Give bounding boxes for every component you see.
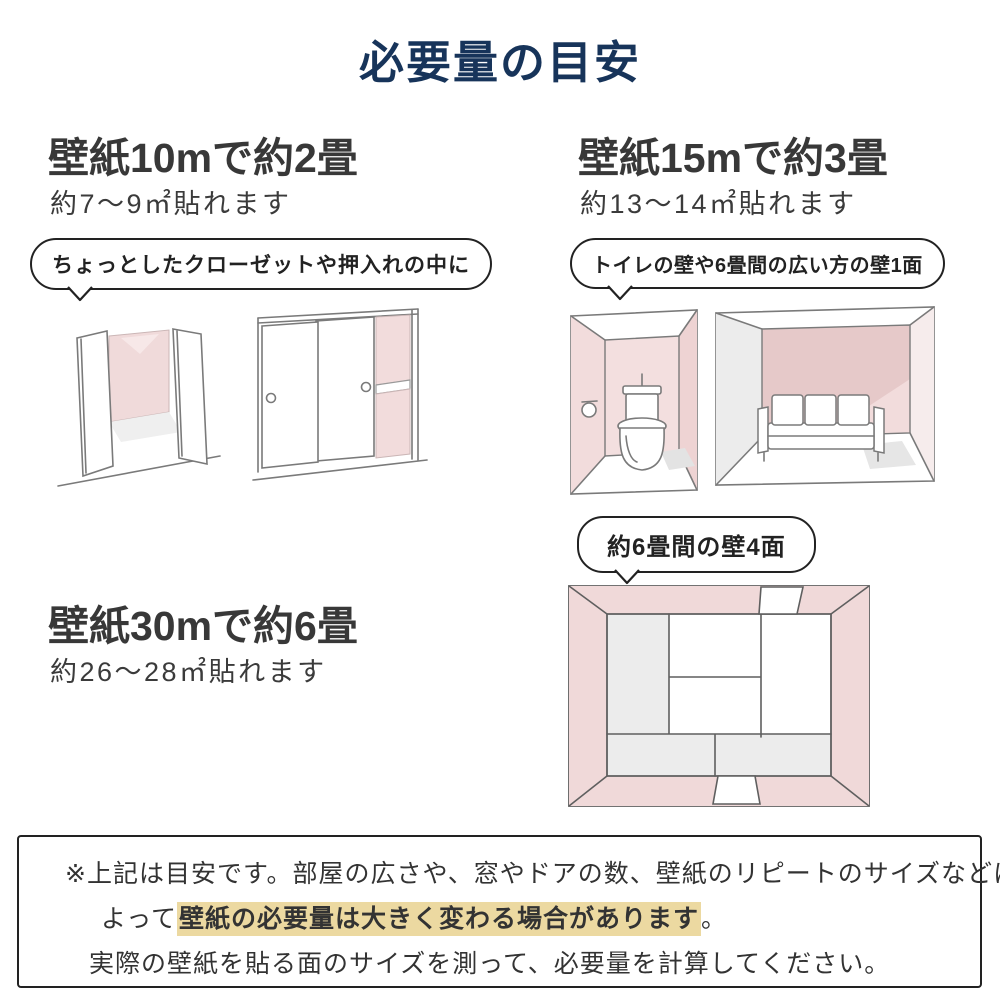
interior-upper-wall: [376, 315, 410, 385]
open-closet-sketch: [55, 306, 223, 498]
speech-bubble-text: 約6畳間の壁4面: [607, 534, 786, 561]
section-10m-subtext: 約7〜9㎡貼れます: [50, 182, 292, 221]
speech-bubble-tail: [606, 285, 634, 301]
floor-shade-left: [607, 614, 669, 734]
sofa-cushion: [805, 395, 836, 425]
note-line-2: よって壁紙の必要量は大きく変わる場合があります。: [101, 897, 962, 942]
panel-handle: [267, 394, 276, 403]
section-10m-speech-bubble: ちょっとしたクローゼットや押入れの中に: [30, 238, 492, 290]
wallpaper-quantity-guide: 必要量の目安 壁紙10mで約2畳 約7〜9㎡貼れます ちょっとしたクローゼットや…: [0, 0, 1000, 1000]
note-line-2-prefix: よって: [101, 905, 177, 933]
six-tatami-room-top-view-sketch: [563, 580, 875, 812]
sofa-cushion: [772, 395, 803, 425]
sofa-armrest-right: [874, 407, 884, 453]
right-wall: [831, 586, 869, 806]
note-line-1: ※上記は目安です。部屋の広さや、窓やドアの数、壁紙のリピートのサイズなどに: [65, 852, 962, 897]
speech-bubble-text: トイレの壁や6畳間の広い方の壁1面: [592, 255, 923, 277]
page-title: 必要量の目安: [0, 26, 1000, 91]
door-bottom: [713, 776, 760, 804]
interior-lower-wall: [376, 389, 410, 458]
section-10m-heading: 壁紙10mで約2畳: [48, 124, 358, 184]
speech-bubble-tail: [66, 286, 94, 302]
sofa-armrest-left: [758, 407, 768, 453]
section-15m-heading: 壁紙15mで約3畳: [578, 124, 888, 184]
section-30m-label-bubble: 約6畳間の壁4面: [577, 516, 816, 573]
toilet-tank-lid: [623, 386, 661, 394]
paper-holder-bracket: [582, 401, 597, 402]
section-30m-subtext: 約26〜28㎡貼れます: [50, 650, 327, 689]
left-door: [77, 331, 113, 476]
note-line-2-suffix: 。: [701, 905, 727, 933]
sofa-cushion: [838, 395, 869, 425]
note-line-3: 実際の壁紙を貼る面のサイズを測って、必要量を計算してください。: [89, 942, 962, 987]
note-box: ※上記は目安です。部屋の広さや、窓やドアの数、壁紙のリピートのサイズなどに よっ…: [17, 835, 982, 988]
sofa-room-sketch: [712, 303, 942, 489]
section-30m-heading: 壁紙30mで約6畳: [48, 592, 358, 652]
note-highlight: 壁紙の必要量は大きく変わる場合があります: [177, 902, 701, 936]
section-15m-subtext: 約13〜14㎡貼れます: [580, 182, 857, 221]
sliding-closet-sketch: [252, 300, 428, 492]
left-wall: [569, 586, 607, 806]
speech-bubble-text: ちょっとしたクローゼットや押入れの中に: [52, 254, 470, 277]
floor-shade-bottom: [607, 734, 831, 776]
toilet-bowl: [620, 428, 664, 470]
toilet-paper-holder: [582, 403, 596, 417]
panel-handle: [362, 383, 371, 392]
door-top: [759, 587, 803, 614]
toilet-room-sketch: [563, 302, 705, 496]
top-wall: [569, 586, 869, 614]
section-15m-speech-bubble: トイレの壁や6畳間の広い方の壁1面: [570, 238, 945, 289]
